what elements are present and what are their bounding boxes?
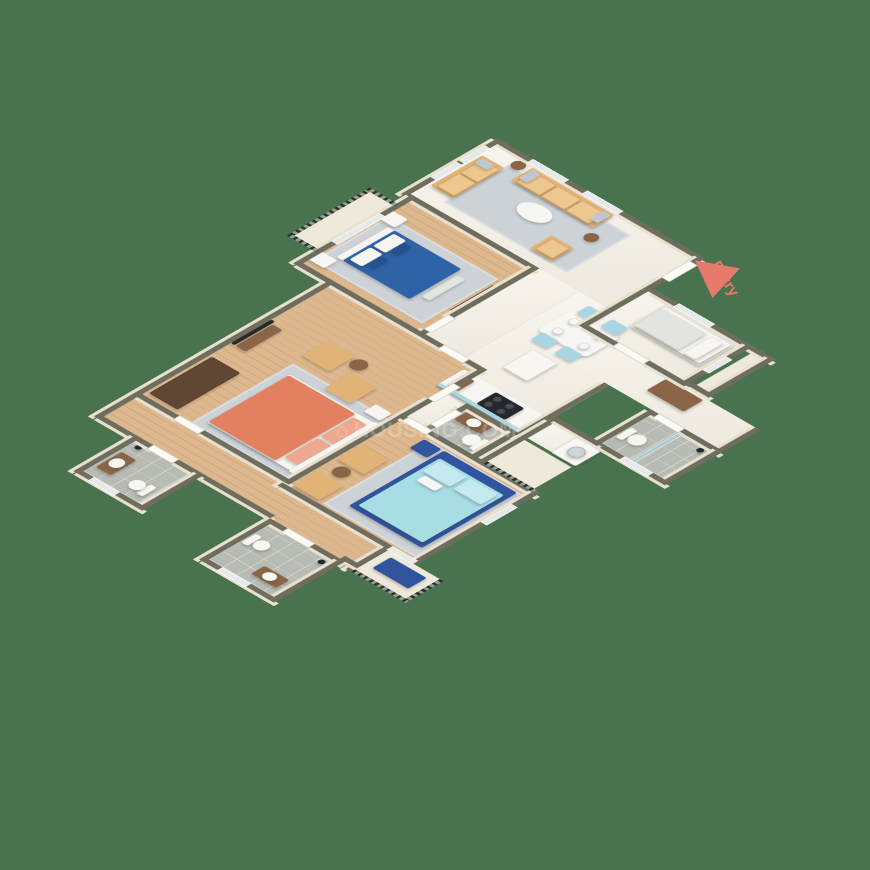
watermark: ⌂ HOUSING.COM: [336, 414, 536, 448]
house-icon: ⌂: [336, 419, 350, 443]
watermark-text: HOUSING.COM: [354, 419, 518, 443]
floor-plan-canvas: ⌂ HOUSING.COM Entry: [0, 0, 870, 870]
apartment-3d-plan: [0, 123, 870, 679]
